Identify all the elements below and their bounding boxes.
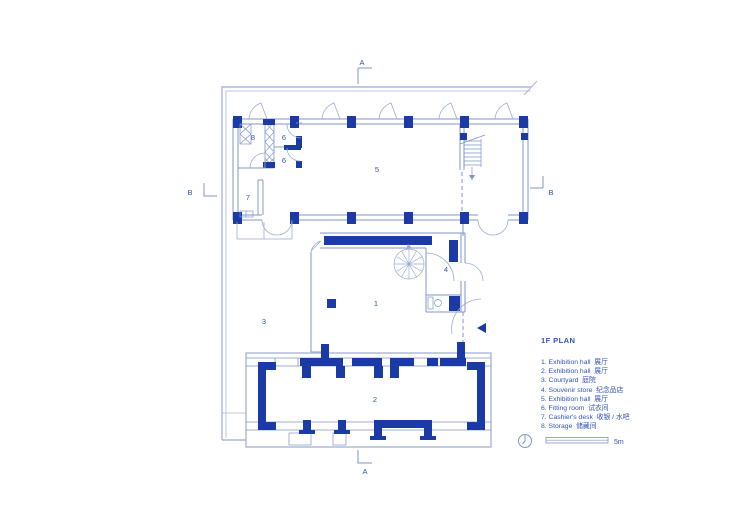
floor-plan-canvas: A A B B 1 2 3 4 5 6 6 7 8 5m 1F PLAN 1. … [0, 0, 750, 530]
legend-item-2: 2. Exhibition hall 展厅 [541, 367, 630, 376]
spiral-stair [394, 244, 424, 279]
legend-item-3: 3. Courtyard 庭院 [541, 376, 630, 385]
legend-item-8: 8. Storage 储藏间 [541, 422, 630, 431]
room-label-5: 5 [375, 165, 379, 174]
scale-label: 5m [614, 439, 624, 446]
room-label-3: 3 [262, 317, 266, 326]
upper-building [233, 103, 528, 239]
compass-icon [519, 435, 532, 448]
section-label-a-top: A [359, 58, 364, 67]
middle-building [311, 233, 486, 352]
legend-item-4: 4. Souvenir store 纪念品店 [541, 386, 630, 395]
scale-bar: 5m [546, 438, 624, 447]
freestanding-column [327, 299, 336, 308]
columns [233, 116, 528, 224]
door-arcs-top [249, 103, 513, 119]
plan-title: 1F PLAN [541, 336, 630, 345]
room-label-8: 8 [251, 133, 255, 142]
entrance-arrow [477, 323, 486, 333]
legend-item-5: 5. Exhibition hall 展厅 [541, 395, 630, 404]
lower-building-walls [258, 342, 485, 440]
section-line-b-left [204, 183, 217, 196]
legend: 1F PLAN 1. Exhibition hall 展厅 2. Exhibit… [541, 336, 630, 432]
site-boundary [222, 81, 537, 440]
section-line-a-top [358, 68, 372, 84]
room-label-4: 4 [444, 265, 448, 274]
room-label-1: 1 [374, 299, 378, 308]
room-label-6a: 6 [282, 133, 286, 142]
section-line-a-bottom [358, 450, 372, 463]
floor-plan-drawing: A A B B 1 2 3 4 5 6 6 7 8 5m [0, 0, 750, 530]
room-label-6b: 6 [282, 156, 286, 165]
lower-building [246, 342, 491, 447]
room-label-2: 2 [373, 395, 377, 404]
section-label-a-bottom: A [362, 467, 367, 476]
room-labels: 1 2 3 4 5 6 6 7 8 [246, 133, 448, 404]
section-label-b-left: B [187, 188, 192, 197]
legend-item-1: 1. Exhibition hall 展厅 [541, 358, 630, 367]
wc-fixtures [428, 297, 442, 309]
legend-item-7: 7. Cashier's desk 收银 / 水吧 [541, 413, 630, 422]
section-label-b-right: B [548, 188, 553, 197]
room-label-7: 7 [246, 193, 250, 202]
legend-item-6: 6. Fitting room 试衣间 [541, 404, 630, 413]
section-line-b-right [530, 176, 543, 188]
